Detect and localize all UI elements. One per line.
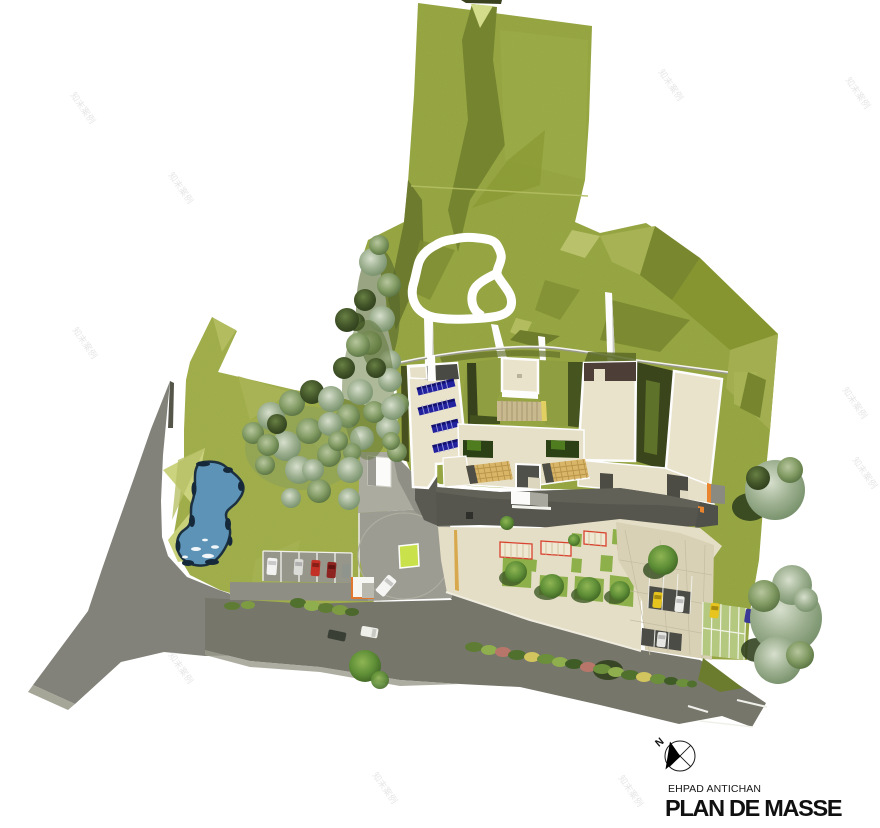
svg-text:知末案例: 知末案例 — [840, 385, 870, 421]
svg-text:知末案例: 知末案例 — [850, 455, 880, 491]
svg-text:知末案例: 知末案例 — [616, 773, 646, 809]
svg-text:EHPAD ANTICHAN: EHPAD ANTICHAN — [668, 783, 761, 795]
svg-text:知末案例: 知末案例 — [68, 90, 98, 126]
svg-text:知末案例: 知末案例 — [166, 650, 196, 686]
svg-text:知末案例: 知末案例 — [656, 67, 686, 103]
svg-text:PLAN DE MASSE: PLAN DE MASSE — [665, 795, 843, 821]
svg-text:知末案例: 知末案例 — [166, 170, 196, 206]
svg-text:知末案例: 知末案例 — [843, 75, 873, 111]
svg-text:知末案例: 知末案例 — [70, 325, 100, 361]
svg-text:知末案例: 知末案例 — [370, 770, 400, 806]
svg-text:N: N — [653, 736, 667, 750]
